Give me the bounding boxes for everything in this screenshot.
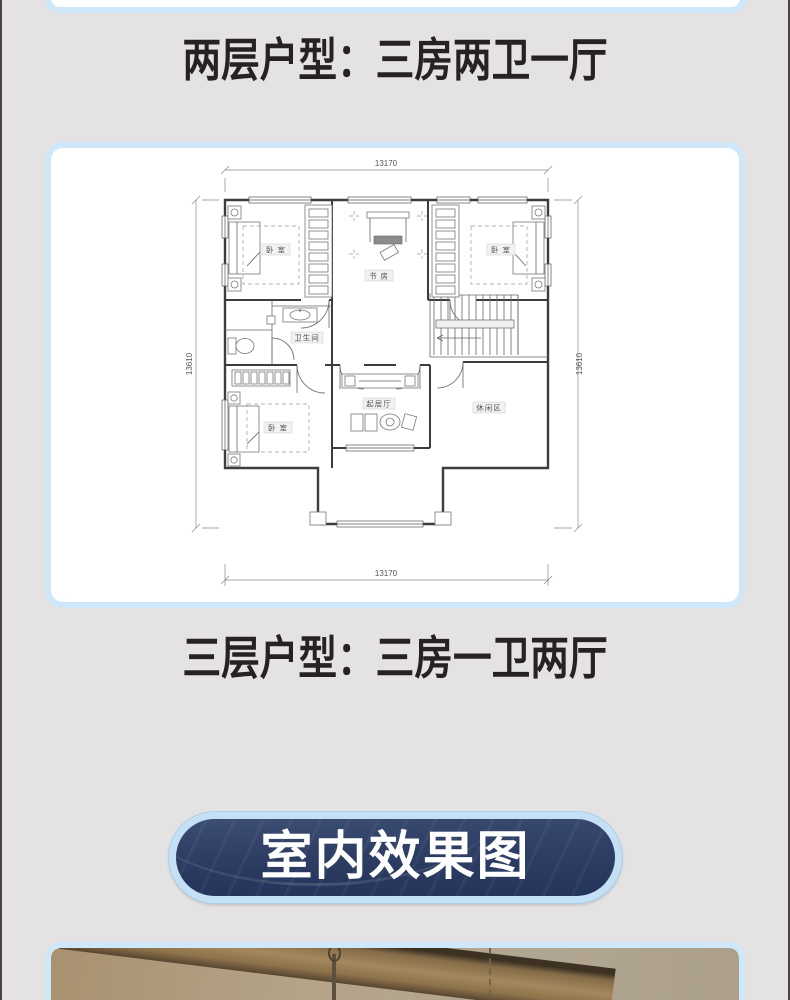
interior-renderings-button-label: 室内效果图 xyxy=(176,819,615,896)
dim-right-value: 13610 xyxy=(575,352,584,375)
dim-top-value: 13170 xyxy=(375,159,398,168)
dimension-left: 13610 xyxy=(185,196,219,532)
dimension-bottom: 13170 xyxy=(221,564,552,586)
previous-card-bottom-edge xyxy=(45,0,746,13)
pendant-lamp-chain xyxy=(489,948,491,1000)
room-living: 起居厅 xyxy=(342,374,418,431)
room-label-bedroom-top-left: 卧 室 xyxy=(266,245,286,255)
staircase xyxy=(434,295,518,355)
balcony-pillar-right xyxy=(435,512,451,525)
dim-bottom-value: 13170 xyxy=(375,569,398,578)
room-bedroom-top-left: 卧 室 xyxy=(228,205,332,297)
floor-plan-svg: 13170 13170 13610 xyxy=(51,148,739,602)
room-label-living: 起居厅 xyxy=(366,400,392,409)
interior-photo-card xyxy=(45,942,745,1000)
room-study: 书 房 xyxy=(349,211,427,281)
interior-ceiling-photo xyxy=(51,948,739,1000)
balcony-pillar-left xyxy=(310,512,326,525)
room-leisure: 休闲区 xyxy=(473,402,505,413)
interior-renderings-button[interactable]: 室内效果图 xyxy=(169,812,622,903)
title-floor2: 两层户型：三房两卫一厅 xyxy=(63,34,727,86)
floor-plan-card: 13170 13170 13610 xyxy=(45,142,745,608)
page: 两层户型：三房两卫一厅 13170 13170 xyxy=(0,0,790,1000)
room-label-leisure: 休闲区 xyxy=(476,403,502,413)
dimension-top: 13170 xyxy=(221,159,552,192)
room-bedroom-top-right: 卧 室 xyxy=(432,205,545,297)
dimension-right: 13610 xyxy=(554,196,584,532)
title-floor3: 三层户型：三房一卫两厅 xyxy=(63,632,727,684)
room-label-bathroom: 卫生间 xyxy=(294,333,320,343)
room-label-bedroom-bottom-left: 卧 室 xyxy=(268,423,288,433)
dim-left-value: 13610 xyxy=(185,352,194,375)
room-label-study: 书 房 xyxy=(369,271,389,281)
room-label-bedroom-top-right: 卧 室 xyxy=(491,245,511,255)
